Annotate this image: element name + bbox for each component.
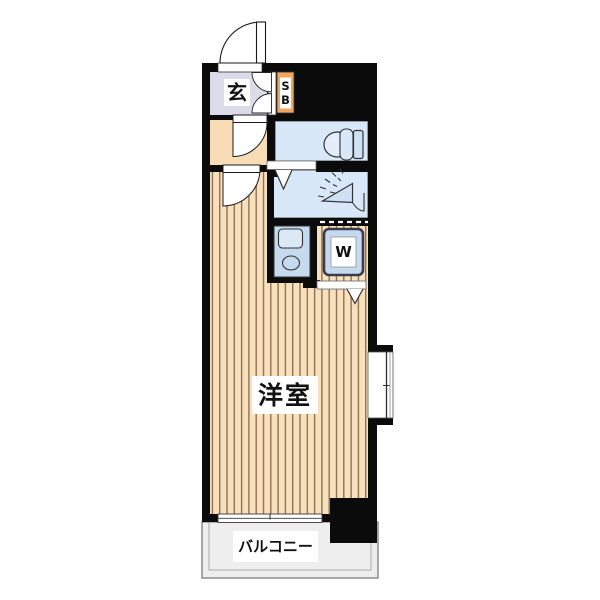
washer-label: W <box>335 243 352 261</box>
genkan-hall-door-leaf <box>233 115 267 123</box>
wall-hall-room-left <box>210 165 223 172</box>
room-door-leaf <box>223 165 260 173</box>
toilet-icon <box>324 129 363 160</box>
wall-counter-washer <box>310 226 317 280</box>
washer-door-track <box>317 281 366 289</box>
wall-genkan-hall <box>210 115 233 120</box>
floor-plan-page: S B W <box>0 0 600 600</box>
balcony-label: バルコニー <box>238 538 313 556</box>
burner-icon <box>283 256 300 270</box>
shoebox-label-s: S <box>281 79 289 93</box>
wall-hall-toilet <box>267 120 275 161</box>
floor-plan-svg: S B W <box>0 0 600 600</box>
wall-toilet-shower <box>316 161 368 172</box>
genkan-label: 玄 <box>227 81 247 105</box>
entrance-door-leaf <box>257 22 266 63</box>
wall-hall-room-right <box>260 165 267 172</box>
toilet-seat <box>340 129 353 160</box>
main-room-label: 洋室 <box>258 381 312 410</box>
shoebox-label-b: B <box>281 93 290 107</box>
wall-right-upper <box>368 63 377 352</box>
entrance-opening <box>218 63 262 72</box>
wall-corner-block <box>330 498 377 543</box>
shower-door-track <box>267 161 316 170</box>
sink-icon <box>279 229 303 248</box>
wall-left <box>202 63 210 522</box>
toilet-tank <box>354 131 364 159</box>
bay-ledge-top <box>368 345 393 352</box>
bay-ledge-bottom <box>368 418 393 425</box>
